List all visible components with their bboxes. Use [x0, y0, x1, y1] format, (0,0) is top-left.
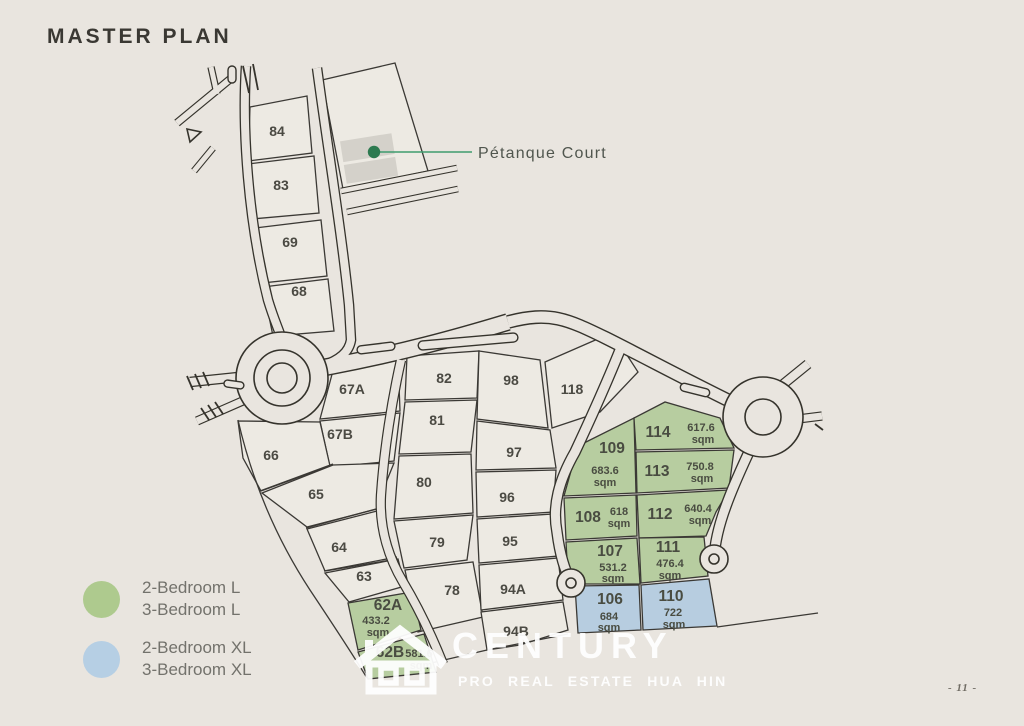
culdesac-right	[700, 545, 728, 573]
lot-label: 108	[575, 509, 601, 526]
lot-label: 112	[647, 506, 672, 523]
lot-label: 97	[506, 444, 522, 460]
page-number: - 11 -	[948, 682, 977, 694]
lot-label: 81	[429, 412, 445, 428]
lot-label: 95	[502, 533, 518, 549]
lot-area: 750.8	[686, 461, 714, 473]
legend-line: 3-Bedroom L	[142, 599, 240, 621]
lot-label: 118	[561, 381, 584, 397]
lot-label: 80	[416, 474, 432, 490]
lot-area: 618	[610, 506, 628, 518]
lot-area-unit: sqm	[689, 515, 712, 527]
watermark-brand: CENTURY	[452, 625, 674, 666]
lot-area-unit: sqm	[691, 473, 714, 485]
legend-swatch-green	[83, 581, 120, 618]
lot-label: 79	[429, 534, 445, 550]
roundabout-west	[236, 332, 328, 424]
legend-line: 2-Bedroom L	[142, 577, 240, 599]
lot-area: 433.2	[362, 615, 390, 627]
lot-label: 106	[597, 591, 623, 608]
lot-96	[476, 470, 556, 517]
lot-label: 69	[282, 234, 298, 250]
petanque-dot	[368, 146, 380, 158]
lot-label: 68	[291, 283, 307, 299]
boundary-southeast	[717, 613, 818, 627]
petanque-label: Pétanque Court	[478, 145, 607, 162]
lot-label: 63	[356, 568, 372, 584]
roundabout-east	[723, 377, 803, 457]
lot-label: 64	[331, 539, 347, 555]
triangle-marker	[187, 129, 201, 142]
lot-label: 107	[597, 543, 623, 560]
lot-label: 113	[644, 463, 669, 480]
lot-area: 617.6	[687, 422, 715, 434]
lot-area-unit: sqm	[608, 518, 631, 530]
legend-label-blue: 2-Bedroom XL 3-Bedroom XL	[142, 637, 252, 681]
lot-label: 78	[444, 582, 460, 598]
legend-item-green: 2-Bedroom L 3-Bedroom L	[83, 577, 240, 621]
brochure-page: Pétanque Court 84 83 69 68 67A 67B 66 65…	[0, 0, 1024, 726]
lot-label: 110	[658, 588, 683, 605]
lot-label: 98	[503, 372, 519, 388]
legend-line: 2-Bedroom XL	[142, 637, 252, 659]
lot-label: 62A	[374, 597, 402, 614]
lot-label: 65	[308, 486, 324, 502]
lot-80	[394, 454, 473, 519]
legend-item-blue: 2-Bedroom XL 3-Bedroom XL	[83, 637, 252, 681]
lot-area-unit: sqm	[602, 573, 625, 585]
lot-area-unit: sqm	[594, 477, 617, 489]
lot-label: 67B	[327, 426, 353, 442]
lot-label: 94A	[500, 581, 526, 597]
lot-label: 83	[273, 177, 289, 193]
lot-area: 476.4	[656, 558, 684, 570]
lot-area: 683.6	[591, 465, 619, 477]
lot-label: 66	[263, 447, 279, 463]
lot-label: 109	[599, 440, 625, 457]
culdesac-left	[557, 569, 585, 597]
lot-area: 722	[664, 607, 682, 619]
lot-area-unit: sqm	[692, 434, 715, 446]
lot-label: 84	[269, 123, 285, 139]
lot-label: 111	[656, 539, 681, 556]
lot-label: 96	[499, 489, 515, 505]
lot-label: 114	[645, 424, 670, 441]
lot-label: 82	[436, 370, 452, 386]
watermark-tagline: PRO REAL ESTATE HUA HIN	[458, 673, 727, 689]
page-title: MASTER PLAN	[47, 25, 232, 49]
lot-label: 67A	[339, 381, 365, 397]
legend-line: 3-Bedroom XL	[142, 659, 252, 681]
lot-98	[477, 351, 548, 428]
lot-area-unit: sqm	[659, 570, 682, 582]
lot-area: 640.4	[684, 503, 712, 515]
legend-swatch-blue	[83, 641, 120, 678]
legend-label-green: 2-Bedroom L 3-Bedroom L	[142, 577, 240, 621]
